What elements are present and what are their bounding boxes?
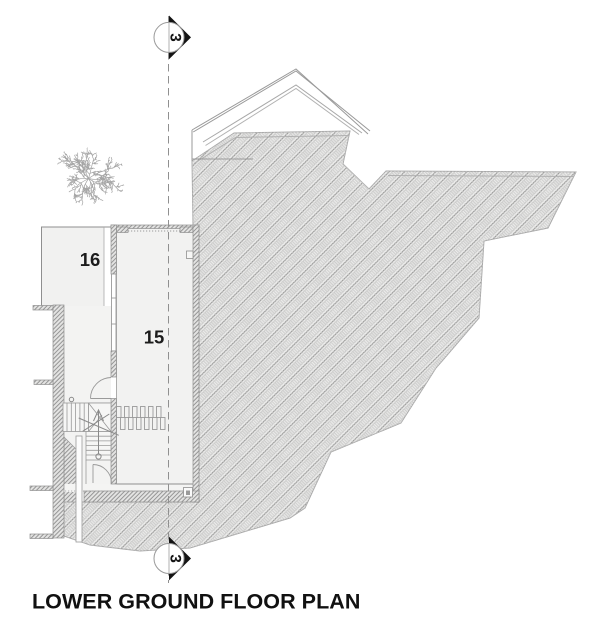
svg-text:15: 15 xyxy=(144,327,165,348)
svg-text:16: 16 xyxy=(80,249,101,270)
svg-text:LOWER GROUND FLOOR PLAN: LOWER GROUND FLOOR PLAN xyxy=(32,590,360,614)
